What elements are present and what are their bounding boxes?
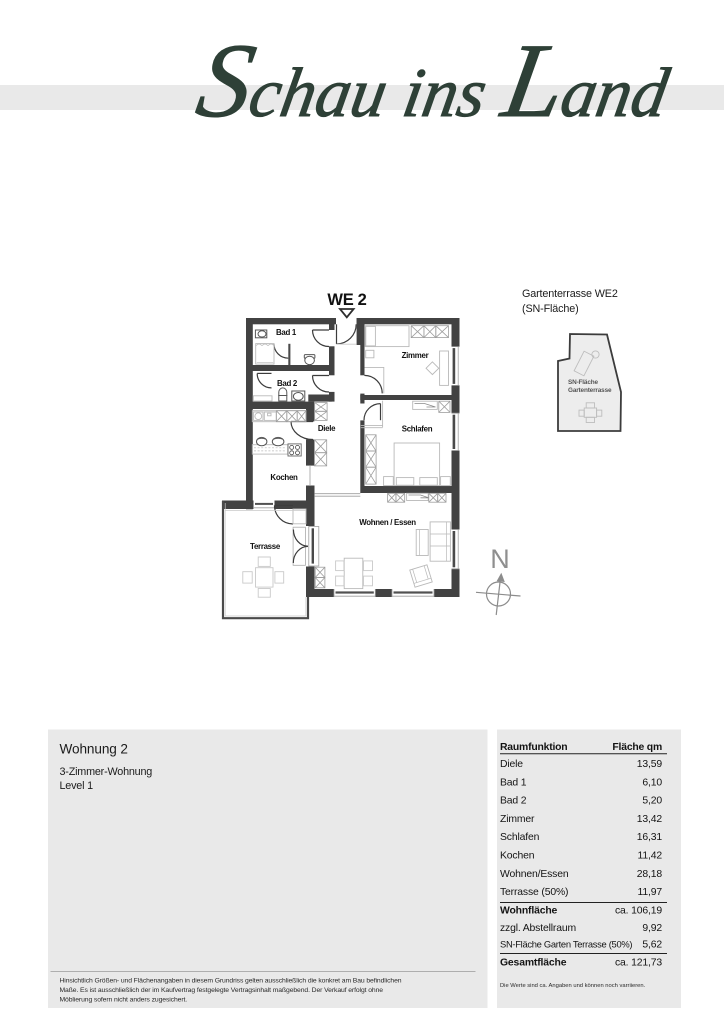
svg-text:Gesamtfläche: Gesamtfläche [500, 958, 567, 969]
svg-text:Bad 2: Bad 2 [277, 379, 298, 388]
svg-text:6,10: 6,10 [642, 777, 662, 788]
svg-text:Terrasse (50%): Terrasse (50%) [500, 887, 568, 898]
svg-text:13,59: 13,59 [637, 759, 663, 770]
svg-text:ca. 106,19: ca. 106,19 [615, 906, 662, 917]
svg-text:Schlafen: Schlafen [402, 425, 433, 434]
svg-text:Die Werte sind ca. Angaben und: Die Werte sind ca. Angaben und können no… [500, 983, 646, 989]
svg-text:ca. 121,73: ca. 121,73 [615, 958, 662, 969]
svg-text:3-Zimmer-Wohnung: 3-Zimmer-Wohnung [60, 766, 153, 778]
svg-text:Bad 1: Bad 1 [276, 328, 297, 337]
svg-text:Gartenterrasse: Gartenterrasse [568, 387, 612, 394]
svg-text:Wohnen / Essen: Wohnen / Essen [359, 518, 416, 527]
svg-text:Raumfunktion: Raumfunktion [500, 742, 567, 753]
svg-text:11,97: 11,97 [638, 887, 663, 898]
svg-text:5,62: 5,62 [642, 940, 662, 951]
svg-text:Möblierung sofern nicht anders: Möblierung sofern nicht anders zugesiche… [60, 997, 188, 1004]
svg-text:5,20: 5,20 [642, 796, 662, 807]
svg-text:Hinsichtlich Größen- und Fläch: Hinsichtlich Größen- und Flächenangaben … [60, 978, 402, 985]
svg-text:Kochen: Kochen [500, 851, 535, 862]
svg-text:Bad 2: Bad 2 [500, 796, 527, 807]
svg-text:Kochen: Kochen [270, 473, 298, 482]
svg-text:Diele: Diele [318, 424, 336, 433]
svg-text:SN-Fläche: SN-Fläche [568, 379, 598, 386]
svg-text:Wohnfläche: Wohnfläche [500, 906, 558, 917]
svg-text:N: N [490, 544, 510, 574]
svg-text:zzgl. Abstellraum: zzgl. Abstellraum [500, 923, 576, 934]
svg-text:Terrasse: Terrasse [250, 542, 281, 551]
svg-text:Maße. Es ist ausschließlich de: Maße. Es ist ausschließlich der im Kaufv… [60, 987, 384, 994]
svg-text:(SN-Fläche): (SN-Fläche) [522, 303, 579, 315]
svg-text:Zimmer: Zimmer [402, 351, 429, 360]
svg-text:16,31: 16,31 [637, 832, 663, 843]
svg-text:SN-Fläche Garten Terrasse (50%: SN-Fläche Garten Terrasse (50%) [500, 939, 632, 950]
svg-text:Bad 1: Bad 1 [500, 777, 527, 788]
svg-text:Wohnung 2: Wohnung 2 [60, 742, 128, 757]
svg-text:13,42: 13,42 [637, 814, 663, 825]
svg-text:Zimmer: Zimmer [500, 814, 535, 825]
svg-text:Wohnen/Essen: Wohnen/Essen [500, 869, 569, 880]
svg-text:28,18: 28,18 [637, 869, 663, 880]
svg-text:Diele: Diele [500, 759, 523, 770]
svg-text:Fläche qm: Fläche qm [612, 742, 662, 753]
svg-text:Gartenterrasse WE2: Gartenterrasse WE2 [522, 288, 618, 300]
svg-text:9,92: 9,92 [642, 923, 662, 934]
svg-text:WE 2: WE 2 [327, 291, 366, 309]
svg-text:Level 1: Level 1 [60, 780, 94, 792]
svg-text:Schlafen: Schlafen [500, 832, 540, 843]
svg-text:11,42: 11,42 [638, 851, 663, 862]
